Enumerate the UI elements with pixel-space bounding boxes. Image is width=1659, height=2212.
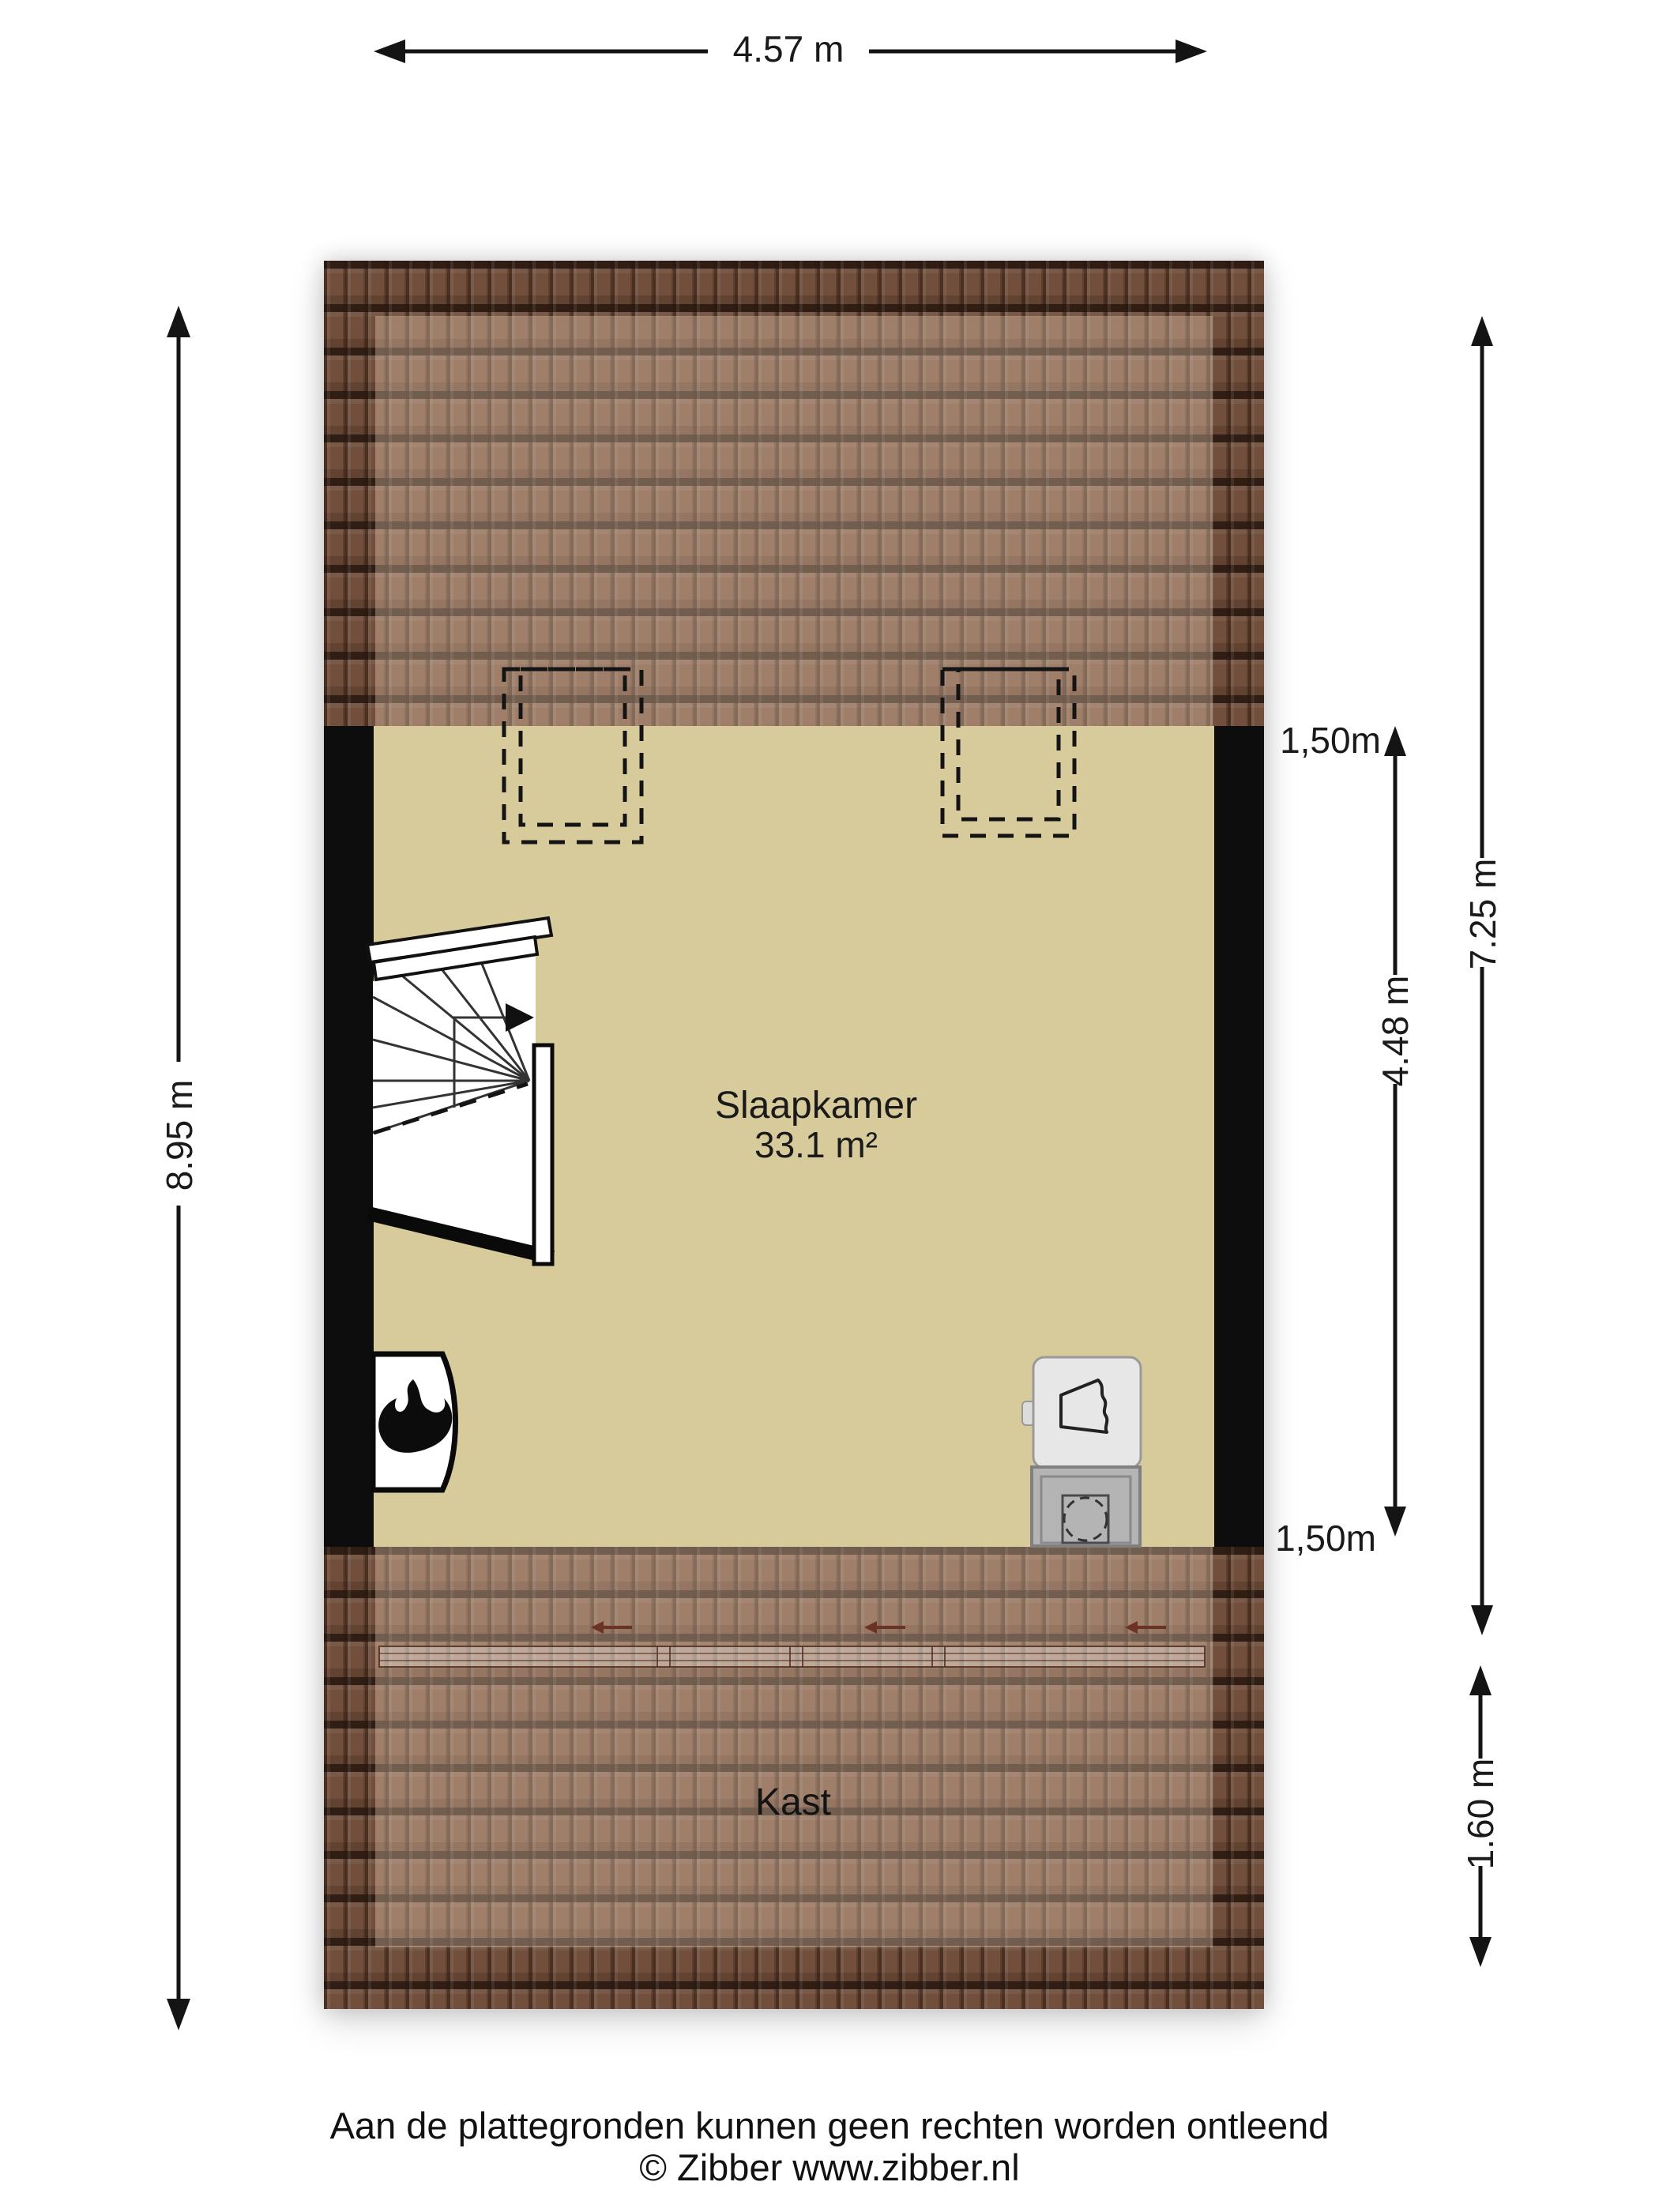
heater-unit	[373, 1354, 456, 1490]
washing-machine-body	[1032, 1467, 1140, 1546]
headroom-label-bottom: 1,50m	[1262, 1517, 1389, 1559]
dimension-label-right-outer: 7.25 m	[1461, 827, 1504, 1001]
washing-machine	[1032, 1467, 1140, 1546]
room-label-closet: Kast	[675, 1781, 912, 1824]
floorplan-page: 4.57 m 8.95 m 1,50m 4.48 m 7.25 m 1,50m …	[0, 0, 1659, 2212]
headroom-label-top: 1,50m	[1267, 719, 1394, 762]
sink-cabinet	[1033, 1357, 1141, 1468]
room-area-bedroom: 33.1 m²	[658, 1123, 974, 1166]
sliding-door-arrow-icon	[591, 1621, 1166, 1634]
closet-sliding-doors	[379, 1621, 1205, 1667]
dimension-arrow-right-inner	[1384, 726, 1406, 1537]
staircase	[367, 918, 553, 1264]
dimension-label-left: 8.95 m	[158, 1048, 201, 1222]
footer-copyright: © Zibber www.zibber.nl	[0, 2146, 1659, 2189]
dimension-label-top: 4.57 m	[709, 28, 867, 70]
sliding-door-track	[379, 1646, 1205, 1667]
footer-disclaimer: Aan de plattegronden kunnen geen rechten…	[0, 2104, 1659, 2147]
dimension-label-right-inner: 4.48 m	[1374, 944, 1416, 1118]
dormer-window-left	[504, 669, 641, 842]
dimension-label-right-bottom: 1.60 m	[1459, 1727, 1502, 1901]
stair-railing	[534, 1045, 552, 1264]
room-label-bedroom: Slaapkamer	[658, 1084, 974, 1127]
sink-unit	[1022, 1357, 1141, 1468]
dormer-window-right	[942, 669, 1074, 836]
